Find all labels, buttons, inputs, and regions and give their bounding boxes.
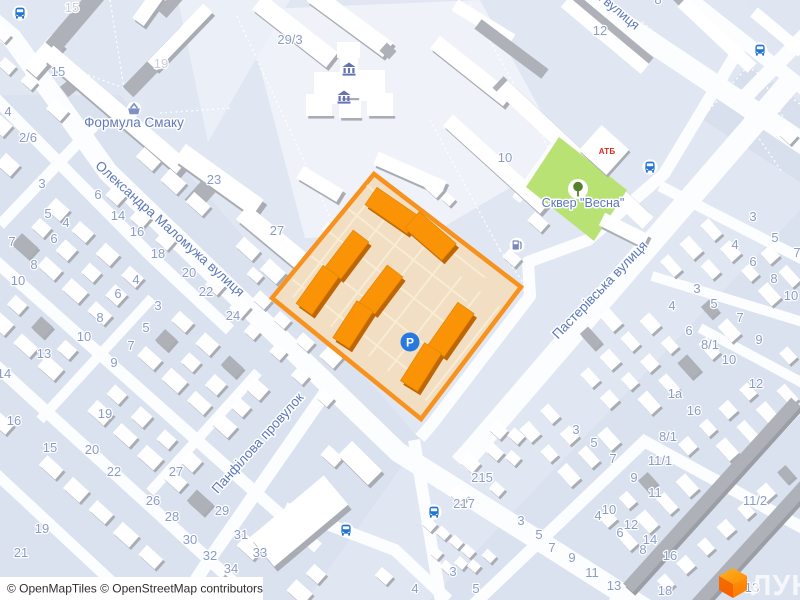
svg-text:13: 13 — [607, 578, 621, 593]
svg-text:11/2: 11/2 — [743, 493, 767, 508]
svg-text:18: 18 — [151, 246, 165, 261]
svg-text:28: 28 — [165, 509, 179, 524]
svg-text:32: 32 — [203, 548, 217, 563]
svg-text:16: 16 — [7, 413, 21, 428]
svg-text:34: 34 — [224, 561, 238, 576]
svg-text:19: 19 — [35, 521, 49, 536]
svg-text:14: 14 — [111, 208, 125, 223]
svg-text:7: 7 — [736, 310, 743, 325]
svg-text:9: 9 — [755, 332, 762, 347]
svg-text:217: 217 — [453, 496, 475, 511]
svg-text:Сквер "Весна": Сквер "Весна" — [542, 196, 625, 210]
svg-text:6: 6 — [94, 187, 101, 202]
svg-text:24: 24 — [226, 308, 240, 323]
svg-text:10: 10 — [11, 273, 25, 288]
svg-text:6: 6 — [749, 254, 756, 269]
svg-text:10: 10 — [784, 288, 798, 303]
svg-text:5: 5 — [472, 581, 479, 596]
svg-text:19: 19 — [154, 56, 168, 71]
svg-text:10: 10 — [722, 352, 736, 367]
svg-text:9: 9 — [630, 470, 637, 485]
svg-text:16: 16 — [687, 403, 701, 418]
svg-text:8: 8 — [770, 271, 777, 286]
svg-text:8: 8 — [30, 257, 37, 272]
svg-text:4: 4 — [62, 215, 69, 230]
svg-text:5: 5 — [710, 296, 717, 311]
svg-text:6: 6 — [685, 323, 692, 338]
svg-text:12: 12 — [593, 23, 607, 38]
svg-text:26: 26 — [146, 493, 160, 508]
svg-text:12: 12 — [624, 517, 638, 532]
svg-text:8: 8 — [654, 0, 661, 7]
svg-text:3: 3 — [517, 513, 524, 528]
svg-text:27: 27 — [169, 464, 183, 479]
svg-text:11: 11 — [648, 485, 662, 500]
svg-text:7: 7 — [127, 338, 134, 353]
svg-text:3: 3 — [449, 564, 456, 579]
svg-text:АТБ: АТБ — [599, 147, 616, 156]
svg-text:4: 4 — [4, 104, 11, 119]
svg-text:6: 6 — [114, 286, 121, 301]
svg-text:18: 18 — [658, 583, 672, 598]
svg-text:29/3: 29/3 — [277, 32, 302, 47]
svg-text:4: 4 — [132, 272, 139, 287]
svg-text:29: 29 — [215, 503, 229, 518]
svg-text:7: 7 — [8, 234, 15, 249]
svg-text:3: 3 — [38, 176, 45, 191]
svg-text:1а: 1а — [668, 386, 683, 401]
svg-text:7: 7 — [609, 451, 616, 466]
svg-text:19: 19 — [98, 406, 112, 421]
svg-text:5: 5 — [771, 230, 778, 245]
svg-text:5: 5 — [590, 435, 597, 450]
svg-text:11/1: 11/1 — [648, 453, 672, 468]
svg-text:11: 11 — [585, 565, 599, 580]
svg-text:23: 23 — [207, 172, 221, 187]
svg-text:7: 7 — [548, 540, 555, 555]
svg-text:3: 3 — [154, 298, 161, 313]
svg-text:16: 16 — [130, 224, 144, 239]
svg-text:20: 20 — [182, 265, 196, 280]
svg-text:10: 10 — [498, 150, 512, 165]
svg-text:6: 6 — [616, 525, 623, 540]
svg-text:22: 22 — [199, 284, 213, 299]
svg-text:215: 215 — [471, 470, 493, 485]
svg-text:4: 4 — [411, 581, 418, 596]
svg-text:8: 8 — [96, 310, 103, 325]
svg-text:3: 3 — [693, 281, 700, 296]
svg-text:2/6: 2/6 — [19, 130, 37, 145]
svg-text:4: 4 — [668, 298, 675, 313]
svg-text:10: 10 — [602, 502, 616, 517]
svg-text:5: 5 — [535, 527, 542, 542]
svg-text:8/1: 8/1 — [659, 429, 677, 444]
svg-text:10: 10 — [77, 329, 91, 344]
svg-text:ЛУН: ЛУН — [751, 570, 800, 600]
svg-text:3: 3 — [749, 209, 756, 224]
svg-text:22: 22 — [107, 464, 121, 479]
svg-text:14: 14 — [0, 366, 11, 381]
svg-text:30: 30 — [183, 532, 197, 547]
svg-text:27: 27 — [270, 223, 284, 238]
svg-text:20: 20 — [85, 442, 99, 457]
svg-text:14: 14 — [643, 532, 657, 547]
svg-text:4: 4 — [731, 237, 738, 252]
svg-text:16: 16 — [663, 548, 677, 563]
svg-text:21: 21 — [14, 545, 28, 560]
svg-text:Формула Смаку: Формула Смаку — [84, 115, 184, 130]
svg-text:© OpenMapTiles © OpenStreetMap: © OpenMapTiles © OpenStreetMap contribut… — [7, 582, 263, 596]
svg-text:8/1: 8/1 — [701, 337, 719, 352]
svg-text:9: 9 — [110, 355, 117, 370]
svg-text:33: 33 — [253, 545, 267, 560]
svg-text:7: 7 — [793, 245, 800, 260]
svg-text:6: 6 — [50, 231, 57, 246]
svg-text:13: 13 — [37, 346, 51, 361]
svg-text:9: 9 — [568, 550, 575, 565]
svg-text:15: 15 — [43, 440, 57, 455]
svg-text:P: P — [406, 336, 414, 350]
svg-text:3: 3 — [572, 422, 579, 437]
svg-text:15: 15 — [51, 64, 65, 79]
svg-text:5: 5 — [142, 320, 149, 335]
svg-text:12: 12 — [749, 376, 763, 391]
svg-text:31: 31 — [234, 527, 248, 542]
svg-text:5: 5 — [44, 206, 51, 221]
svg-text:4: 4 — [594, 508, 601, 523]
svg-text:15: 15 — [65, 0, 79, 15]
